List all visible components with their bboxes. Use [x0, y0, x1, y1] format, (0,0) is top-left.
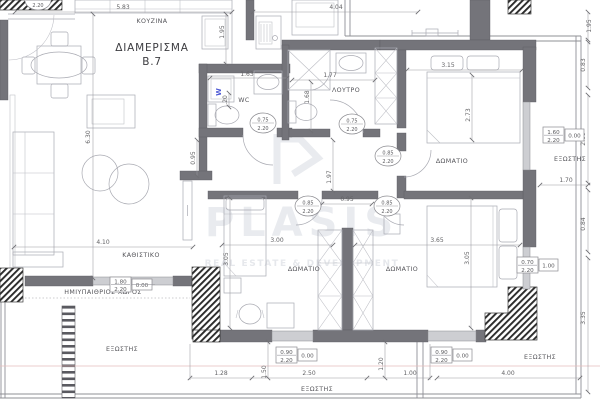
dim-hall-height: 1.97 — [326, 170, 333, 184]
sofa — [13, 132, 54, 255]
balcony-left-label: ΕΞΩΣΤΗΣ — [106, 346, 138, 353]
floor-plan-sheet: PLASIS REAL ESTATE & DEVELOPMENT — [0, 0, 600, 400]
pillow — [467, 56, 499, 70]
wc-door-arc — [243, 135, 273, 165]
door-label-bedroom2: 0.85 2.20 — [295, 196, 321, 216]
svg-text:2.20: 2.20 — [382, 159, 393, 165]
bedroom3-bottom-window — [428, 331, 476, 341]
dim-bed1-depth: 2.73 — [465, 108, 472, 122]
balcony-center-label: ΕΞΩΣΤΗΣ — [301, 386, 333, 393]
washbasin — [336, 53, 366, 73]
svg-text:0.75: 0.75 — [257, 118, 268, 124]
svg-text:0.85: 0.85 — [381, 201, 392, 207]
svg-text:2.20: 2.20 — [346, 127, 357, 133]
door-label-bedroom1: 0.85 2.20 — [375, 146, 401, 166]
balcony-baluster-railing — [62, 306, 75, 398]
svg-text:1.60: 1.60 — [547, 130, 560, 136]
svg-text:2.20: 2.20 — [114, 287, 127, 293]
svg-text:2.20: 2.20 — [280, 358, 293, 364]
dim-bed3-depth: 3.05 — [464, 251, 471, 265]
bed — [427, 72, 520, 143]
dim-living-width: 4.10 — [96, 239, 110, 246]
desk-chair — [239, 304, 261, 324]
svg-text:2.20: 2.20 — [435, 358, 448, 364]
dim-kitchen-depth: 1.95 — [219, 25, 226, 39]
bedroom1-furniture — [427, 56, 520, 143]
dim-bath-depth: 1.68 — [304, 90, 311, 104]
svg-text:2.20: 2.20 — [521, 268, 534, 274]
faucet — [273, 36, 278, 41]
dim-balc-right-bottom: 3.35 — [580, 311, 587, 325]
bedroom2-label: ΔΩΜΑΤΙΟ — [288, 266, 320, 273]
svg-text:0.75: 0.75 — [346, 119, 357, 125]
svg-text:0.90: 0.90 — [435, 350, 448, 356]
dim-bed1-width: 3.15 — [441, 62, 455, 69]
living-label: ΚΑΘΙΣΤΙΚΟ — [122, 252, 160, 259]
bedroom3-label: ΔΩΜΑΤΙΟ — [386, 266, 418, 273]
window-label-balcony-right-lower: 0.70 2.20 1.00 — [517, 257, 558, 274]
bathroom-label: ΛΟΥΤΡΟ — [332, 87, 360, 94]
svg-text:2.20: 2.20 — [547, 138, 560, 144]
window-label-bottom-right: 0.90 2.20 0.00 — [431, 347, 472, 364]
upper-unit-furniture — [292, 0, 458, 36]
bed — [427, 206, 497, 287]
nightstand — [224, 278, 241, 293]
balcony-right-label: ΕΞΩΣΤΗΣ — [554, 156, 586, 163]
bedroom2-bottom-window — [272, 331, 313, 341]
dim-hall-left: 0.95 — [190, 151, 197, 165]
dim-bottom-3: 1.00 — [403, 370, 417, 377]
dim-bottom-2: 2.50 — [302, 370, 316, 377]
svg-text:0.00: 0.00 — [301, 354, 314, 360]
desk — [267, 303, 294, 328]
dim-balc-right-low: 0.84 — [580, 217, 587, 231]
balcony-bottomright-label: ΕΞΩΣΤΗΣ — [524, 354, 556, 361]
dim-wc-width: 1.63 — [240, 71, 254, 78]
dim-bed2-width: 3.00 — [270, 237, 284, 244]
pillow — [499, 246, 517, 279]
window-label-balcony-right-upper: 1.60 2.20 0.00 — [543, 127, 584, 144]
apartment-number: B.7 — [142, 56, 162, 68]
apartment-floor-plan: PLASIS REAL ESTATE & DEVELOPMENT — [0, 0, 600, 400]
svg-text:0.00: 0.00 — [136, 283, 149, 289]
svg-text:0.85: 0.85 — [382, 151, 393, 157]
svg-text:0.70: 0.70 — [521, 260, 534, 266]
dim-living-height: 6.30 — [85, 130, 92, 144]
svg-text:2.20: 2.20 — [257, 126, 268, 132]
svg-text:0.00: 0.00 — [456, 354, 469, 360]
svg-text:0.90: 0.90 — [280, 350, 293, 356]
hall-closet — [375, 48, 397, 124]
door-label-wc: 0.75 2.20 — [250, 113, 276, 133]
svg-text:2.20: 2.20 — [381, 209, 392, 215]
svg-text:1.00: 1.00 — [542, 264, 555, 270]
dim-bath-width: 1.77 — [323, 72, 337, 79]
plasis-logo-icon — [274, 134, 318, 184]
dim-bottom-4: 4.00 — [501, 370, 515, 377]
dining-set — [22, 32, 95, 98]
svg-text:0.00: 0.00 — [568, 134, 581, 140]
door-label-bath: 0.75 2.20 — [339, 114, 365, 134]
svg-text:2.20: 2.20 — [32, 3, 43, 9]
bedroom1-label: ΔΩΜΑΤΙΟ — [436, 158, 468, 165]
armchair — [87, 95, 135, 128]
pillow — [499, 209, 517, 242]
washer-label: W — [215, 88, 223, 96]
bedroom3-furniture — [384, 206, 517, 287]
apartment-title: ΔΙΑΜΕΡΙΣΜΑ — [115, 42, 188, 54]
wc-label: WC — [238, 97, 250, 104]
window-label-bottom-left: 0.90 2.20 0.00 — [276, 347, 317, 364]
living-window — [10, 95, 15, 275]
dim-wc-wall: .20 — [222, 95, 229, 105]
chair — [51, 32, 68, 46]
dim-balc-right-top: 0.83 — [580, 58, 587, 72]
dim-bottom-1: 1.28 — [214, 370, 228, 377]
dim-bed2-depth: 3.05 — [223, 252, 230, 266]
svg-text:2.20: 2.20 — [302, 209, 313, 215]
door-label-bedroom3: 0.85 2.20 — [374, 196, 400, 216]
svg-text:0.85: 0.85 — [302, 201, 313, 207]
dim-bed3-width: 3.65 — [430, 237, 444, 244]
bedroom1-window — [523, 102, 530, 170]
dim-balc-right-width: 1.70 — [559, 177, 573, 184]
dim-balc-depth-2: 1.20 — [378, 357, 385, 371]
kitchen-label: ΚΟΥΖΙΝΑ — [137, 18, 168, 25]
dim-hall-corridor: 0.95 — [340, 196, 354, 203]
dim-balc-depth-1: 1.50 — [261, 365, 268, 379]
chair — [51, 84, 68, 98]
dim-top-bedroom: 4.04 — [329, 4, 343, 11]
dim-balcony-top-right: 1.95 — [586, 19, 593, 33]
coffee-table — [109, 164, 149, 204]
dim-top-living: 5.83 — [116, 4, 130, 11]
